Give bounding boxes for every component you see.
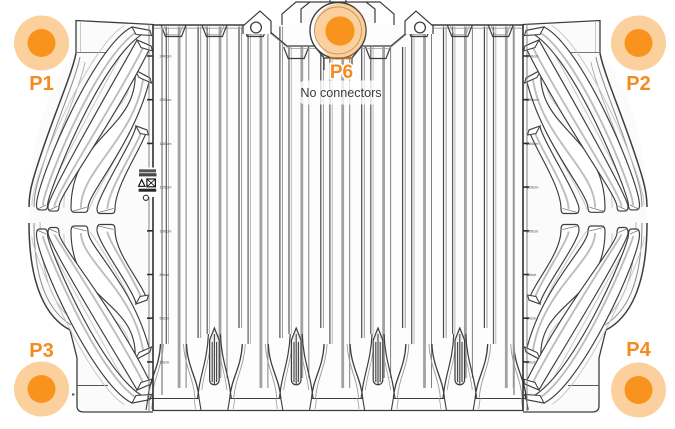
svg-text:200cm: 200cm <box>527 97 540 102</box>
svg-text:120cm: 120cm <box>527 185 540 190</box>
svg-text:P2: P2 <box>626 73 650 95</box>
svg-text:100cm: 100cm <box>527 228 540 233</box>
svg-text:No connectors: No connectors <box>300 86 381 100</box>
svg-text:80cm: 80cm <box>527 272 537 277</box>
svg-text:240cm: 240cm <box>160 54 173 59</box>
svg-text:P1: P1 <box>29 73 53 95</box>
svg-text:80cm: 80cm <box>160 272 170 277</box>
svg-text:50cm: 50cm <box>160 316 170 321</box>
svg-text:50cm: 50cm <box>527 316 537 321</box>
svg-text:100cm: 100cm <box>160 228 173 233</box>
svg-text:160cm: 160cm <box>160 141 173 146</box>
svg-text:160cm: 160cm <box>527 141 540 146</box>
svg-text:20cm: 20cm <box>160 359 170 364</box>
svg-text:P3: P3 <box>29 340 53 362</box>
svg-text:P4: P4 <box>626 339 651 361</box>
svg-text:20cm: 20cm <box>527 359 537 364</box>
svg-text:240cm: 240cm <box>527 54 540 59</box>
svg-text:200cm: 200cm <box>160 97 173 102</box>
svg-text:P6: P6 <box>330 62 353 83</box>
svg-text:120cm: 120cm <box>160 185 173 190</box>
